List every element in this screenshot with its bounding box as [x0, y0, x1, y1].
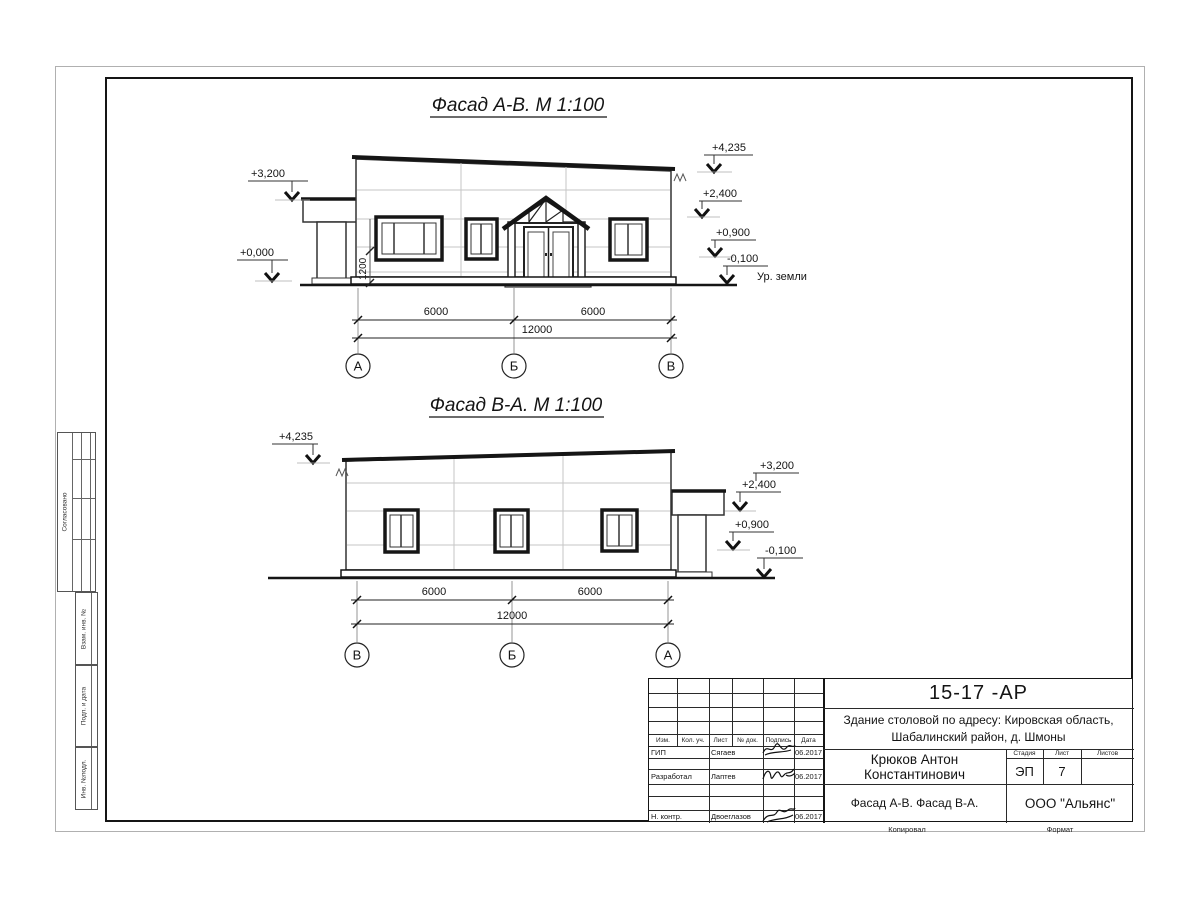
- facade1-break-symbol: [674, 174, 686, 181]
- signature-scribble: [759, 763, 797, 785]
- title-block: 15-17 -АР Здание столовой по адресу: Кир…: [648, 678, 1133, 822]
- margin-podp-label: Подп. и дата: [81, 687, 88, 725]
- author-name: Крюков Антон Константинович: [823, 749, 1006, 784]
- margin-inv-label: Инв. №подл.: [81, 759, 88, 798]
- door-handle: [545, 253, 547, 256]
- dim-value: 6000: [424, 306, 448, 318]
- row-date: 06.2017: [794, 746, 823, 758]
- elevation-mark-4235: +4,235: [697, 142, 753, 172]
- row-date: 06.2017: [794, 769, 823, 784]
- facade2-window-2: [495, 510, 528, 552]
- sheet-content-title: Фасад А-В. Фасад В-А.: [823, 784, 1006, 823]
- margin-vzam-cell: Взам. инв. №: [75, 592, 98, 665]
- row-date: 06.2017: [794, 810, 823, 823]
- facade1-axes: А Б В: [346, 354, 683, 378]
- row-role: Н. контр.: [651, 810, 707, 823]
- dim-value: 1200: [358, 257, 369, 280]
- row-role: Разработал: [651, 769, 707, 784]
- facade1-plinth: [351, 277, 676, 284]
- elevation-value: +2,400: [703, 188, 737, 200]
- axis-letter: В: [353, 648, 362, 663]
- facade1-window-3: [610, 219, 647, 260]
- project-line1: Здание столовой по адресу: Кировская обл…: [843, 712, 1113, 728]
- margin-approved-box: Согласовано: [57, 432, 96, 592]
- margin-podp-cell: Подп. и дата: [75, 665, 98, 747]
- facade-va-view: Фасад В-А. М 1:100: [268, 395, 803, 667]
- dim-value: 6000: [422, 586, 446, 598]
- margin-vzam-label: Взам. инв. №: [81, 608, 88, 648]
- facade2-dimensions: 6000 6000 12000: [351, 581, 674, 642]
- col-izm: Изм.: [649, 734, 677, 746]
- document-code: 15-17 -АР: [823, 679, 1134, 708]
- elevation-mark-2400: +2,400: [687, 188, 742, 217]
- facade2-title: Фасад В-А. М 1:100: [430, 395, 603, 416]
- axis-letter: Б: [510, 359, 519, 374]
- elevation-value: +3,200: [760, 460, 794, 472]
- stage-value: ЭП: [1006, 758, 1043, 784]
- facade1-dimensions: 6000 6000 12000: [352, 288, 677, 353]
- project-line2: Шабалинский район, д. Шмоны: [891, 729, 1065, 745]
- sheets-label: Листов: [1081, 749, 1134, 758]
- facade1-porch-left: [301, 199, 358, 284]
- axis-letter: В: [667, 359, 676, 374]
- facade-av-view: Фасад А-В. М 1:100: [237, 95, 807, 378]
- project-description: Здание столовой по адресу: Кировская обл…: [823, 708, 1134, 749]
- dim-value: 6000: [578, 586, 602, 598]
- elevation-value: +2,400: [742, 479, 776, 491]
- stage-label: Стадия: [1006, 749, 1043, 758]
- facade2-axes: В Б А: [345, 643, 680, 667]
- axis-letter: Б: [508, 648, 517, 663]
- elevation-value: +4,235: [712, 142, 746, 154]
- elevation-mark-minus0100: -0,100: [757, 545, 803, 577]
- col-list: Лист: [709, 734, 732, 746]
- entrance-door: [524, 227, 573, 283]
- row-name: Сягаев: [711, 746, 761, 758]
- row-name: Лаптев: [711, 769, 761, 784]
- elevation-mark-3200: +3,200: [248, 168, 310, 200]
- sheet-label: Лист: [1043, 749, 1081, 758]
- elevation-value: +4,235: [279, 431, 313, 443]
- facade2-plinth: [341, 570, 676, 577]
- format-label: Формат: [1015, 824, 1105, 834]
- facade1-window-2: [466, 219, 497, 259]
- facade1-title: Фасад А-В. М 1:100: [432, 95, 605, 116]
- ground-level-label: Ур. земли: [757, 271, 807, 283]
- axis-letter: А: [354, 359, 363, 374]
- elevation-mark-4235: +4,235: [272, 431, 330, 463]
- axis-letter: А: [664, 648, 673, 663]
- col-kol: Кол. уч.: [677, 734, 709, 746]
- col-data: Дата: [794, 734, 823, 746]
- elevation-mark-2400: +2,400: [725, 479, 781, 511]
- facade2-porch-right: [670, 491, 726, 578]
- signature-scribble: [759, 739, 797, 759]
- signature-scribble: [759, 803, 797, 825]
- sheet-number: 7: [1043, 758, 1081, 784]
- elevation-value: +0,900: [716, 227, 750, 239]
- dim-value: 12000: [497, 610, 528, 622]
- dim-value: 12000: [522, 324, 553, 336]
- row-name: Двоеглазов: [711, 810, 761, 823]
- elevation-mark-0000: +0,000: [237, 247, 292, 281]
- elevation-mark-3200: +3,200: [753, 460, 799, 481]
- facade1-window-1: [376, 217, 442, 260]
- margin-inv-cell: Инв. №подл.: [75, 747, 98, 810]
- row-role: ГИП: [651, 746, 707, 758]
- margin-approved-label: Согласовано: [62, 492, 69, 531]
- elevation-value: +3,200: [251, 168, 285, 180]
- company-name: ООО "Альянс": [1006, 784, 1134, 823]
- facade2-window-3: [602, 510, 637, 551]
- door-handle: [550, 253, 552, 256]
- dim-value: 6000: [581, 306, 605, 318]
- facade2-window-1: [385, 510, 418, 552]
- elevation-value: -0,100: [727, 253, 758, 265]
- elevation-value: +0,000: [240, 247, 274, 259]
- elevation-value: +0,900: [735, 519, 769, 531]
- elevation-value: -0,100: [765, 545, 796, 557]
- copied-label: Копировал: [862, 824, 952, 834]
